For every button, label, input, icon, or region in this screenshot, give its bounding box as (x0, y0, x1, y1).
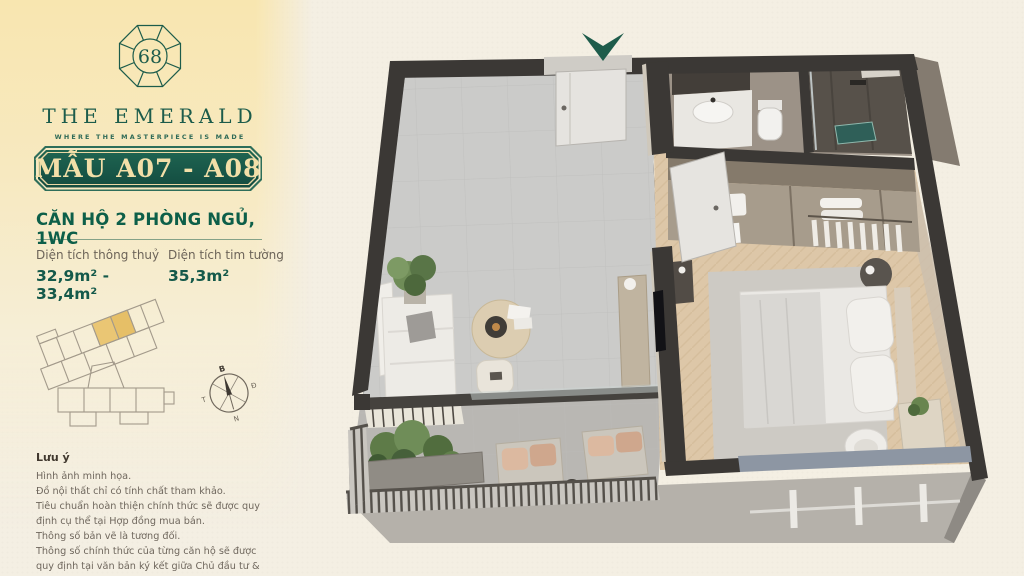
bed-pillow (845, 296, 894, 354)
compass-south-label: N (233, 414, 240, 423)
bed-blanket (740, 292, 826, 428)
note-line: Hình ảnh minh họa. (36, 469, 270, 484)
media-console (618, 275, 650, 387)
floorplan-render (320, 0, 1024, 576)
brand-logo: 68 THE EMERALD WHERE THE MASTERPIECE IS … (0, 18, 300, 141)
disclaimer-notes: Lưu ý Hình ảnh minh họa. Đồ nội thất chỉ… (36, 451, 270, 576)
compass-needle (222, 375, 233, 396)
entry-door (556, 69, 626, 146)
bed-pillow (849, 354, 899, 414)
gross-area: Diện tích tim tường 35,3m² (168, 248, 284, 303)
bedroom-door (670, 152, 736, 262)
gross-area-label: Diện tích tim tường (168, 248, 284, 262)
note-line: Tiêu chuẩn hoàn thiện chính thức sẽ được… (36, 499, 270, 529)
seat-cushion (501, 447, 528, 470)
notes-title: Lưu ý (36, 451, 270, 464)
logo-number: 68 (138, 46, 162, 68)
brand-name: THE EMERALD (0, 104, 300, 128)
note-line: Thông số chính thức của từng căn hộ sẽ đ… (36, 544, 270, 576)
wall-post (354, 394, 370, 410)
bedroom (672, 258, 946, 463)
compass-north-label: B (218, 364, 226, 374)
bedside-round-table (860, 258, 892, 290)
brochure-page: 68 THE EMERALD WHERE THE MASTERPIECE IS … (0, 0, 1024, 576)
faucet (711, 98, 716, 103)
brand-tagline: WHERE THE MASTERPIECE IS MADE (0, 133, 300, 141)
emerald-gem-icon: 68 (105, 18, 195, 96)
keyplan-tower (29, 292, 172, 390)
vase (624, 278, 636, 290)
shower-tray (835, 122, 876, 144)
note-line: Đồ nội thất chỉ có tính chất tham khảo. (36, 484, 270, 499)
door-handle (562, 106, 567, 111)
toilet (758, 108, 782, 140)
folded-towels (820, 198, 862, 208)
sofa (382, 294, 456, 401)
gross-area-value: 35,3m² (168, 267, 284, 285)
compass-west-label: T (200, 396, 208, 405)
unit-model-badge: MẪU A07 - A08 (34, 146, 262, 191)
divider (36, 239, 262, 240)
compass-east-label: Đ (250, 381, 258, 390)
keyplan-podium (58, 388, 174, 426)
sofa-pillow (406, 311, 436, 343)
shower-head (850, 80, 866, 85)
unit-type-title: CĂN HỘ 2 PHÒNG NGỦ, 1WC (36, 210, 286, 248)
unit-model-label: MẪU A07 - A08 (34, 146, 262, 191)
vanity-sink (693, 101, 733, 123)
note-line: Thông số bản vẽ là tương đối. (36, 529, 270, 544)
building-keyplan (28, 292, 184, 434)
keyplan-connector (88, 362, 124, 388)
compass-rose: B Đ N T (196, 360, 262, 426)
net-area-label: Diện tích thông thuỷ (36, 248, 168, 262)
door-handle (714, 206, 719, 211)
